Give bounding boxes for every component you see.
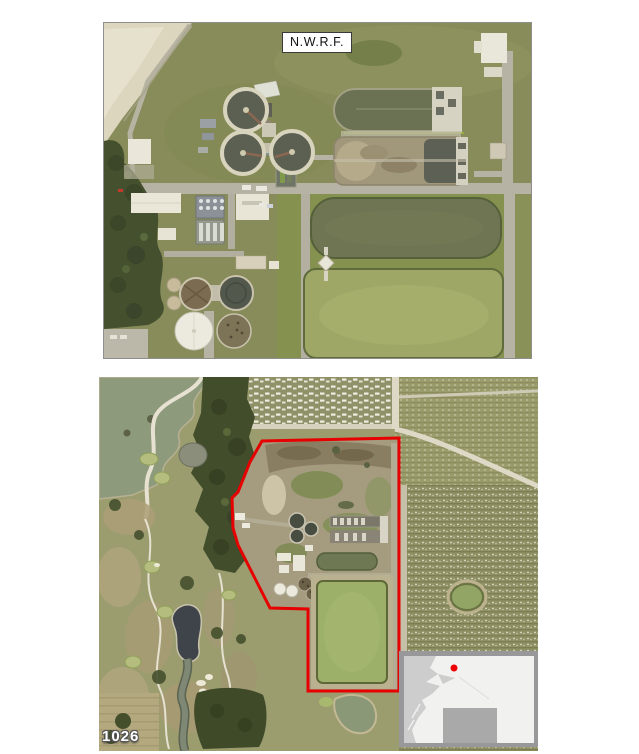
aeration-basin: [334, 137, 468, 185]
aerial-photo-bottom: 1026: [99, 377, 538, 751]
locator-inset-map: [399, 651, 538, 747]
facility-name-label: N.W.R.F.: [282, 32, 352, 53]
treatment-plant-graphic: [104, 23, 531, 358]
location-marker-dot: [451, 665, 458, 672]
aerial-photo-top: N.W.R.F.: [103, 22, 532, 359]
storage-ponds: [304, 198, 503, 358]
photo-number-label: 1026: [102, 728, 139, 745]
site-overview-graphic: [99, 377, 538, 751]
trailer-park: [249, 377, 399, 429]
oxidation-ditch: [334, 87, 464, 137]
parking-area: [104, 329, 148, 358]
